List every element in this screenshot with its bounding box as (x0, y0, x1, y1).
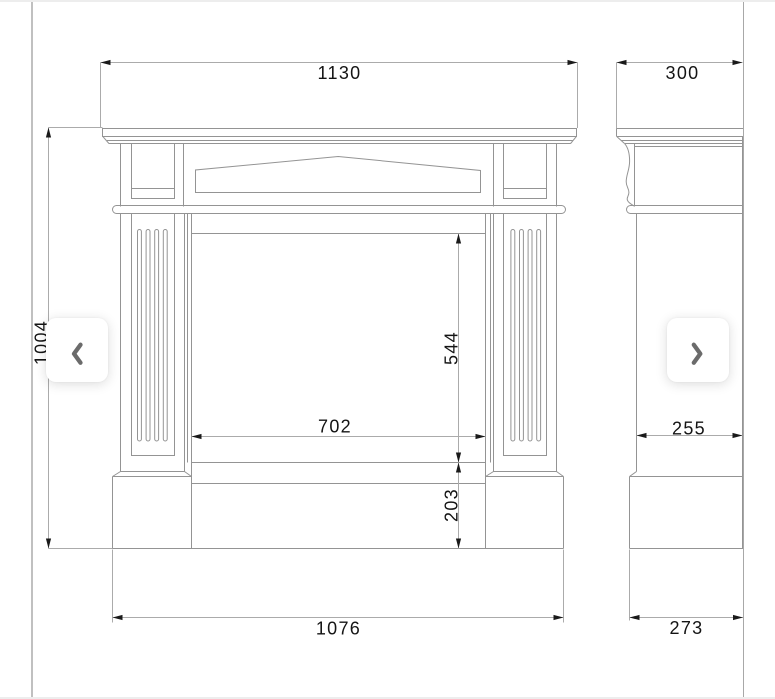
svg-text:273: 273 (670, 618, 704, 638)
svg-text:203: 203 (442, 488, 462, 522)
svg-text:702: 702 (318, 416, 352, 436)
svg-text:1130: 1130 (318, 63, 362, 83)
svg-text:1076: 1076 (316, 619, 361, 639)
svg-text:544: 544 (442, 331, 462, 365)
svg-text:255: 255 (672, 418, 706, 438)
svg-text:300: 300 (666, 63, 700, 83)
